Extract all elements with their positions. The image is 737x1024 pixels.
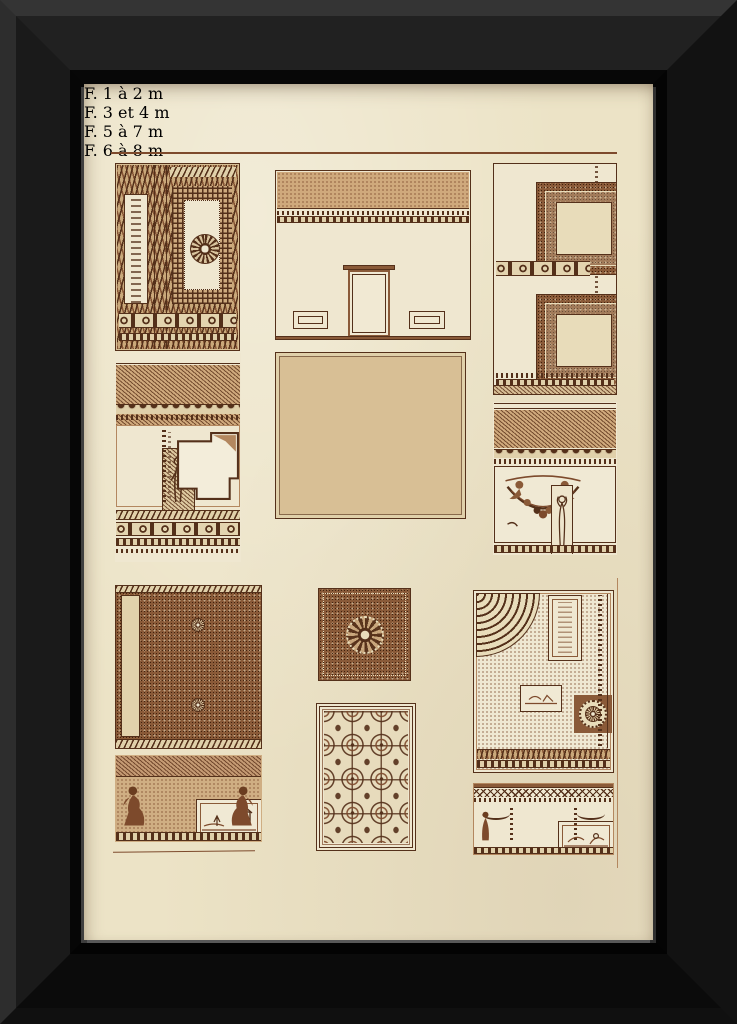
- window-panel: [353, 232, 385, 262]
- scale-bar-label: F. 6 à 8: [84, 141, 143, 160]
- margin-slot: [125, 698, 136, 728]
- bead-row: [494, 459, 616, 464]
- dentil-band: [116, 832, 261, 841]
- print-paper: F. 1 à 2 m F. 3 et 4 m: [84, 84, 653, 940]
- center-medallion: [346, 616, 384, 654]
- octagon-pattern-field: [324, 711, 408, 843]
- grotesque-panel: [548, 595, 582, 661]
- panel-coffered-grid: [275, 352, 466, 519]
- step-acroterion: [208, 763, 236, 774]
- caryatid-figure-illustration: [553, 487, 571, 553]
- panel-square-coffer: [318, 588, 411, 681]
- border-line: [607, 594, 608, 748]
- wall-panel: [295, 235, 326, 303]
- bead-band: [496, 373, 614, 378]
- scale-bar-label: F. 5 à 7: [84, 122, 143, 141]
- acroterion: [578, 416, 604, 426]
- guilloche-band: [477, 749, 610, 759]
- frieze-tablet: [414, 179, 454, 201]
- dentil-band: [494, 545, 616, 553]
- scale-bar-unit: m: [148, 141, 163, 160]
- step-acroterion: [130, 760, 164, 774]
- scroll-border: [116, 739, 261, 748]
- scale-bar-label: F. 3 et 4: [84, 103, 149, 122]
- scale-bar-unit: m: [148, 122, 163, 141]
- molding-lines: [494, 403, 616, 409]
- plate-bottom-left-rule: [113, 850, 255, 852]
- zigzag-garland: [474, 789, 613, 797]
- seated-figure-illustration: [228, 784, 254, 828]
- panel-ceiling-rosette-coffers: [493, 163, 617, 395]
- step-block: [124, 355, 146, 364]
- corner-tablet: [120, 167, 136, 178]
- frieze-seated-figures: [115, 755, 262, 842]
- plinth: [293, 311, 328, 329]
- panel-octagon-coffers: [115, 585, 262, 749]
- landscape-sketch: [523, 688, 559, 709]
- metope-band: [119, 313, 236, 328]
- dot-row: [474, 798, 613, 802]
- scale-bar-fig-1-2: F. 1 à 2 m: [84, 84, 332, 103]
- candelabrum: [510, 806, 513, 840]
- cyma-row: [494, 449, 616, 458]
- base-line: [276, 336, 470, 339]
- chain-border: [598, 595, 602, 746]
- scale-bar-fig-6-8: F. 6 à 8 m: [84, 141, 262, 160]
- plate-right-rule: [617, 578, 618, 868]
- bottom-tablet: [350, 660, 380, 672]
- dot-row: [116, 549, 240, 553]
- leaf-border: [116, 586, 261, 593]
- panel-octagon-grid: [316, 703, 416, 851]
- corner-medallion: [385, 596, 403, 614]
- dentil-molding: [277, 216, 469, 223]
- chain-ornament: [168, 432, 171, 498]
- dentil-band: [116, 538, 240, 546]
- candelabrum: [574, 806, 577, 840]
- leaf-column-panel: [124, 194, 148, 304]
- scale-bar-unit: m: [154, 103, 169, 122]
- chain-ornament: [162, 428, 166, 502]
- side-tablet: [327, 621, 339, 649]
- plate-top-rule: [111, 152, 617, 154]
- panel-wall-elevation: [275, 170, 471, 340]
- cornice-step: [190, 370, 220, 380]
- dentil-band: [477, 760, 610, 768]
- scale-bar-unit: m: [148, 84, 163, 103]
- garland-putti-illustration: [497, 469, 589, 540]
- swag: [577, 808, 605, 820]
- side-tablet: [390, 621, 402, 649]
- dentil-band: [474, 847, 613, 854]
- plinth: [409, 311, 445, 329]
- top-tablet: [350, 597, 380, 609]
- corner-figure-illustration: [478, 810, 493, 843]
- ornament-tablet: [480, 707, 522, 729]
- door: [348, 270, 390, 337]
- octagon-field: [183, 610, 215, 720]
- dentil-band: [119, 333, 236, 341]
- scale-bar-fig-3-4: F. 3 et 4 m: [84, 103, 346, 122]
- panel-entablature-frieze: [493, 402, 617, 555]
- pilaster: [448, 229, 459, 335]
- panel-ceiling-guilloche: [115, 163, 240, 351]
- wall-panel: [411, 235, 443, 303]
- step-block: [182, 354, 218, 364]
- ornament-tablet: [480, 730, 576, 744]
- bead-molding: [277, 211, 469, 215]
- panel-cornice-fragment: [115, 353, 241, 562]
- scallop-row: [116, 404, 240, 414]
- panel-ceiling-arabesque: [473, 590, 614, 773]
- scale-bar-fig-5-7: F. 5 à 7 m: [84, 122, 198, 141]
- frieze-tablet: [356, 179, 396, 201]
- pilaster: [280, 229, 291, 335]
- rosette-band: [116, 522, 240, 536]
- framed-print-photo: F. 1 à 2 m F. 3 et 4 m: [0, 0, 737, 1024]
- scale-bar-label: F. 1 à 2: [84, 84, 143, 103]
- hatched-strip: [494, 385, 616, 394]
- seated-figure-illustration: [122, 784, 148, 828]
- frieze-garland-landscape: [473, 783, 614, 855]
- acroterion: [520, 412, 564, 426]
- small-landscape-panel: [520, 685, 562, 712]
- corner-medallion: [385, 655, 403, 673]
- chevron-band: [170, 167, 236, 177]
- rosette: [190, 234, 220, 264]
- frieze-tablet: [298, 179, 338, 201]
- engraving-plate: F. 1 à 2 m F. 3 et 4 m: [84, 84, 653, 940]
- bead-row: [116, 415, 240, 420]
- margin-slot: [125, 650, 136, 680]
- separator-band: [496, 261, 590, 276]
- corner-medallion: [326, 596, 344, 614]
- torn-blank-area: [176, 431, 240, 501]
- leaf-band: [116, 510, 240, 520]
- corner-medallion: [326, 655, 344, 673]
- margin-slot: [125, 602, 136, 632]
- top-bar: [474, 784, 613, 788]
